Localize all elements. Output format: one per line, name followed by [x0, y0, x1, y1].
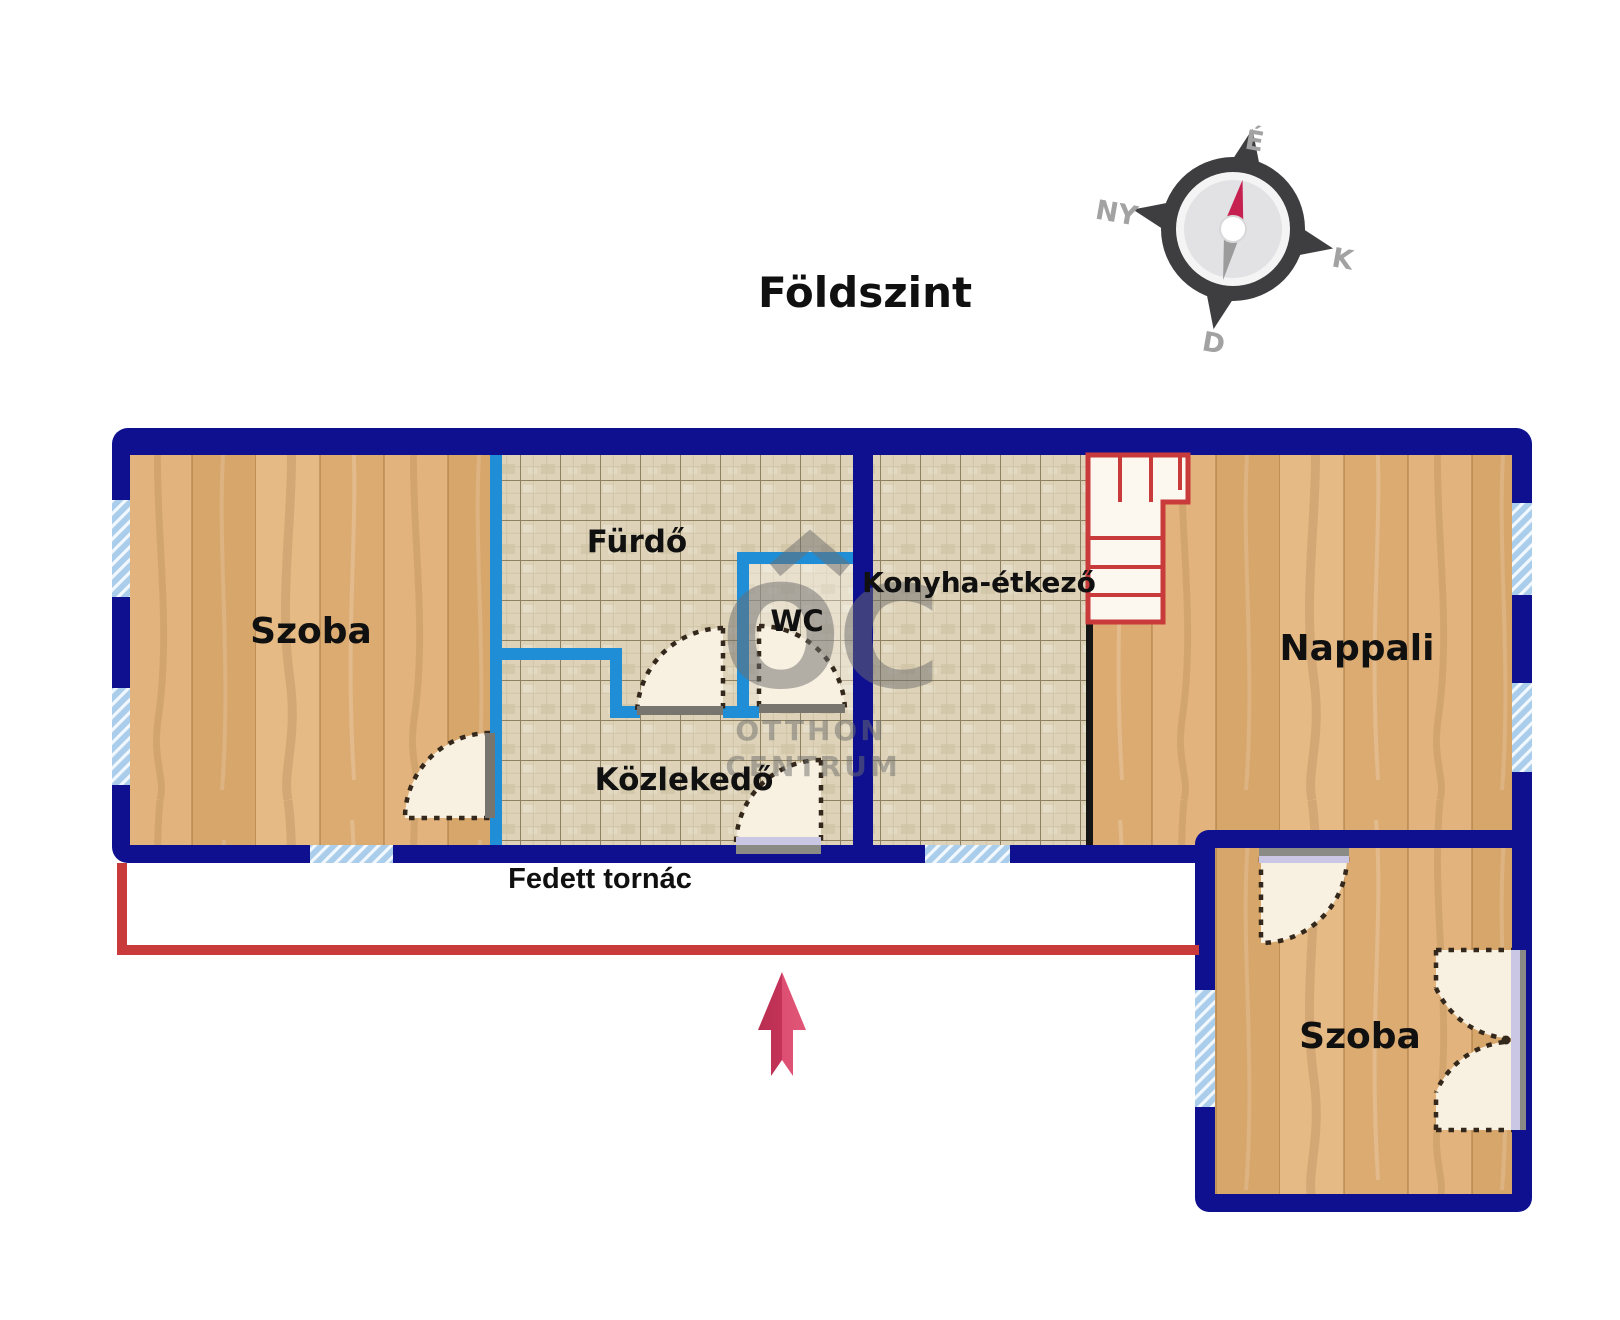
porch-boundary-west: [117, 863, 127, 955]
page-title: Földszint: [758, 268, 972, 317]
hallway-label: Közlekedő: [595, 762, 774, 798]
bathroom-south-wall: [502, 648, 622, 660]
room-top-left-label: Szoba: [250, 611, 372, 652]
door-leaf: [736, 837, 821, 845]
window-east-2: [1512, 683, 1532, 772]
window-east-1: [1512, 503, 1532, 595]
door-frame: [1520, 950, 1526, 1130]
door-leaf: [637, 706, 723, 715]
door-threshold: [736, 845, 821, 854]
floor-plan-canvas: OC OTTHON CENTRUM Szoba Fürdő WC Konyha-…: [0, 0, 1620, 1320]
floor-plan-page: OC OTTHON CENTRUM Szoba Fürdő WC Konyha-…: [0, 0, 1620, 1320]
covered-porch-label: Fedett tornác: [508, 863, 692, 895]
kitchen-living-thin-wall: [1086, 622, 1093, 845]
porch-boundary-south: [117, 945, 1199, 955]
window-annex-west: [1195, 990, 1215, 1107]
compass-north-label: É: [1243, 124, 1267, 159]
bathroom-label: Fürdő: [587, 524, 687, 560]
entrance-arrow-icon: [758, 972, 806, 1076]
window-south-2: [925, 845, 1010, 863]
compass-west-label: NY: [1093, 195, 1140, 233]
window-west-1: [112, 500, 130, 597]
window-south-1: [310, 845, 393, 863]
double-door-meeting-point: [1502, 1036, 1511, 1045]
door-threshold: [1259, 848, 1349, 856]
kitchen-dining-label: Konyha-étkező: [862, 566, 1096, 599]
compass-east-label: K: [1329, 243, 1356, 277]
living-room-label: Nappali: [1280, 628, 1435, 669]
wc-label: WC: [770, 604, 823, 638]
door-leaf: [1511, 950, 1520, 1130]
watermark-name-line1: OTTHON: [735, 714, 886, 747]
room-bottom-right-label: Szoba: [1299, 1016, 1421, 1057]
door-leaf: [485, 733, 495, 818]
door-leaf: [1259, 856, 1349, 863]
compass-south-label: D: [1200, 326, 1227, 360]
compass-rose-icon: É NY K D: [1093, 109, 1356, 360]
window-west-2: [112, 688, 130, 785]
